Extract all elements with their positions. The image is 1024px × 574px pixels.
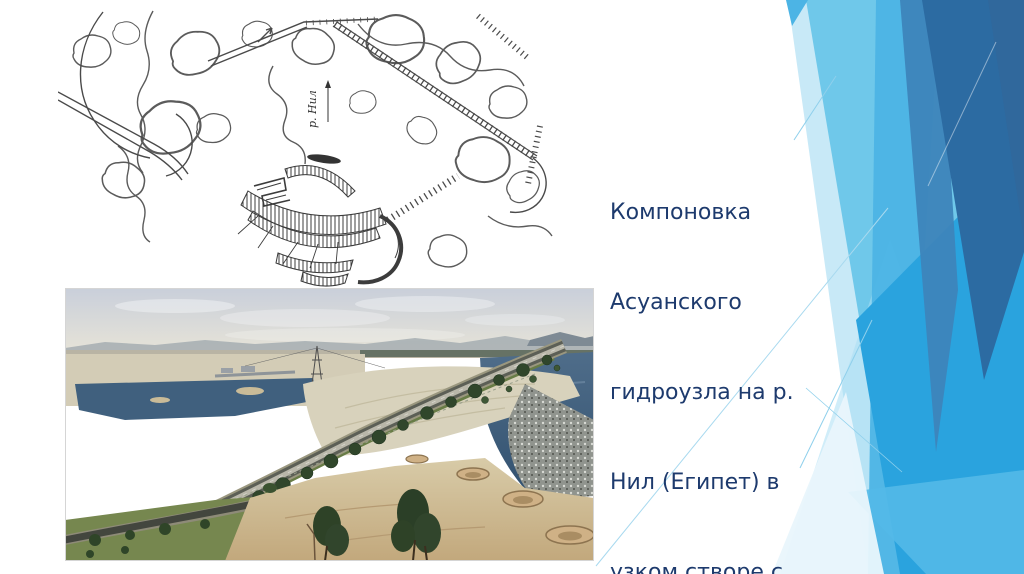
map-island [307, 153, 342, 166]
caption-text: гидроузла на р. [610, 380, 794, 405]
river-flow-arrowhead [325, 80, 331, 88]
slide-canvas: р. Нил [0, 0, 1024, 574]
caption-line: Компоновка [610, 198, 850, 228]
caption-line: Асуанского [610, 288, 850, 318]
map-railways [333, 16, 546, 220]
caption-text: узком створе с [610, 560, 783, 574]
caption: Компоновка Асуанского гидроузла на р. Ни… [610, 138, 850, 574]
river-label-group: р. Нил [306, 80, 331, 128]
map-figure: р. Нил [58, 6, 557, 288]
caption-line: узком створе с [610, 558, 850, 574]
caption-line: гидроузла на р. [610, 378, 850, 408]
photo-figure [65, 288, 594, 561]
caption-line: Нил (Египет) в [610, 468, 850, 498]
caption-text: Компоновка [610, 200, 751, 225]
map-dam-hatched-bands [241, 153, 386, 286]
river-label: р. Нил [306, 90, 319, 128]
caption-text: Нил (Египет) в [610, 470, 780, 495]
caption-text: Асуанского [610, 290, 742, 315]
